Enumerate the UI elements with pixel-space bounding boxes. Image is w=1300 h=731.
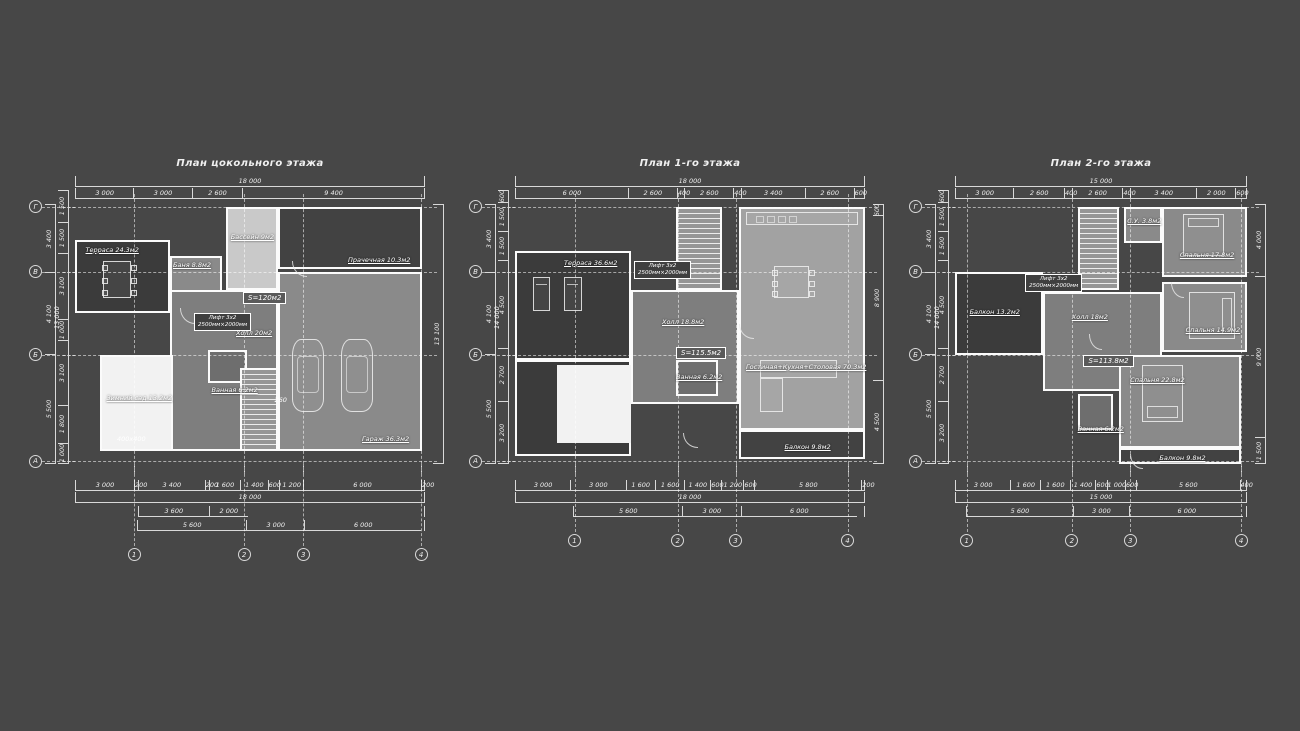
axis-leader-vertical bbox=[848, 464, 849, 532]
annotation: 400х400 bbox=[117, 435, 146, 443]
plan-drawing-area: Терраса 24.3м2Баня 8.8м2Бассейн 9м2Праче… bbox=[75, 204, 425, 464]
dim-gap bbox=[515, 506, 573, 517]
dimension-segment: 1 500 bbox=[1255, 437, 1266, 464]
dimension-segment: 1 500 bbox=[498, 202, 509, 231]
dimension-segment: 3 400 bbox=[485, 204, 496, 272]
dimension-segment: 5 500 bbox=[485, 354, 496, 464]
dimension-segment: 3 400 bbox=[138, 480, 205, 491]
dimension-segment: 600 bbox=[710, 480, 721, 491]
dim-gap bbox=[75, 520, 137, 531]
axis-bubble-4: 4 bbox=[415, 548, 428, 561]
dining-table-icon bbox=[103, 261, 131, 297]
axis-bubble-1: 1 bbox=[568, 534, 581, 547]
dimension-segment: 2 600 bbox=[1072, 188, 1123, 199]
axis-bubble-3: 3 bbox=[297, 548, 310, 561]
pillow-icon bbox=[1188, 218, 1219, 227]
dimension-segment: 1 500 bbox=[58, 222, 69, 254]
grid-line-horizontal bbox=[943, 272, 1259, 273]
lounger-icon bbox=[533, 277, 551, 311]
axis-bubble-2: 2 bbox=[238, 548, 251, 561]
hob-icon bbox=[789, 216, 798, 224]
dimension-segment: 3 100 bbox=[58, 340, 69, 405]
left-outer-dims: 3 4004 1005 500 bbox=[45, 204, 56, 464]
axis-bubble-2: 2 bbox=[671, 534, 684, 547]
axis-leader-vertical bbox=[134, 464, 135, 546]
grid-line-vertical bbox=[134, 194, 135, 474]
dimension-segment: 1 200 bbox=[721, 480, 743, 491]
room-pool bbox=[226, 207, 279, 290]
dimension-segment: 3 000 bbox=[246, 520, 304, 531]
bottom-dim-row-2: 3 6002 000 bbox=[75, 506, 425, 517]
room-label: Балкон 13.2м2 bbox=[970, 308, 1020, 316]
axis-bubble-Б: Б bbox=[29, 348, 42, 361]
dimension-segment: 4 500 bbox=[873, 380, 884, 464]
lounger-back bbox=[567, 284, 578, 285]
grid-line-horizontal bbox=[943, 461, 1259, 462]
room-label: Баня 8.8м2 bbox=[173, 261, 211, 269]
car-roof bbox=[297, 356, 319, 393]
dimension-segment: 1 200 bbox=[279, 480, 303, 491]
dining-table-icon bbox=[774, 266, 809, 297]
dimension-segment: 3 000 bbox=[75, 480, 134, 491]
dimension-segment: 3 000 bbox=[75, 188, 133, 199]
axis-bubble-В: В bbox=[469, 265, 482, 278]
axis-leader-vertical bbox=[303, 464, 304, 546]
chair-icon bbox=[809, 270, 815, 276]
dimension-segment: 1 500 bbox=[498, 231, 509, 260]
dimension-segment: 13 100 bbox=[433, 204, 444, 464]
dimension-segment: 600 bbox=[498, 190, 509, 202]
axis-bubble-Г: Г bbox=[909, 200, 922, 213]
grid-line-vertical bbox=[967, 194, 968, 474]
dimension-segment: 18 000 bbox=[75, 492, 425, 503]
top-segments-dim: 3 0002 6004002 6004003 4002 000600 bbox=[955, 188, 1247, 199]
door-arc-icon bbox=[1130, 454, 1143, 470]
axis-bubble-А: А bbox=[469, 455, 482, 468]
axis-bubble-3: 3 bbox=[729, 534, 742, 547]
right-dims: 4 0009 0001 500 bbox=[1255, 204, 1266, 464]
car-icon bbox=[341, 339, 373, 412]
right-dims: 13 100 bbox=[433, 204, 444, 464]
dimension-segment: 1 600 bbox=[626, 480, 655, 491]
hob-icon bbox=[756, 216, 765, 224]
dimension-segment: 6 000 bbox=[515, 188, 628, 199]
dimension-segment: 200 bbox=[861, 480, 865, 491]
area-stamp: S=113.8м2 bbox=[1083, 355, 1133, 367]
axis-leader-vertical bbox=[967, 464, 968, 532]
pillow-icon bbox=[1147, 406, 1178, 418]
grid-line-vertical bbox=[575, 194, 576, 474]
dimension-segment: 400 bbox=[1122, 188, 1130, 199]
dimension-segment: 4 500 bbox=[498, 260, 509, 348]
room-label: Ванная 6.2м2 bbox=[676, 373, 722, 381]
dimension-segment: 18 000 bbox=[75, 176, 425, 187]
dim-gap bbox=[75, 506, 138, 517]
dimension-segment: 5 800 bbox=[754, 480, 861, 491]
dimension-segment: 600 bbox=[938, 190, 949, 202]
dimension-segment: 3 000 bbox=[515, 480, 570, 491]
bottom-dim-row-2: 5 6003 0006 000 bbox=[515, 506, 865, 517]
top-segments-dim: 6 0002 6004002 6004003 4002 600600 bbox=[515, 188, 865, 199]
dimension-segment: 6 000 bbox=[1129, 506, 1243, 517]
grid-line-horizontal bbox=[503, 207, 877, 208]
axis-bubble-4: 4 bbox=[1235, 534, 1248, 547]
plan-drawing-area: Терраса 36.6м2Холл 18.8м2Ванная 6.2м2Гос… bbox=[515, 204, 865, 464]
axis-leader-vertical bbox=[421, 464, 422, 546]
room-label: Балкон 9.8м2 bbox=[1159, 454, 1205, 462]
room-label: С.У. 3.8м2 bbox=[1127, 217, 1161, 225]
chair-icon bbox=[102, 265, 108, 271]
axis-leader-vertical bbox=[1241, 464, 1242, 532]
dimension-segment: 15 000 bbox=[955, 492, 1247, 503]
dimension-segment: 5 500 bbox=[925, 354, 936, 464]
dimension-segment: 2 700 bbox=[938, 348, 949, 401]
dim-gap bbox=[857, 506, 865, 517]
grid-line-horizontal bbox=[63, 207, 437, 208]
axis-leader-vertical bbox=[678, 464, 679, 532]
dimension-segment: 3 200 bbox=[498, 401, 509, 464]
dimension-segment: 1 400 bbox=[684, 480, 710, 491]
dimension-segment: 3 400 bbox=[741, 188, 805, 199]
area-stamp: S=115.5м2 bbox=[676, 347, 726, 359]
dimension-segment: 600 bbox=[854, 188, 865, 199]
grid-line-horizontal bbox=[943, 207, 1259, 208]
grid-line-horizontal bbox=[503, 461, 877, 462]
stairs bbox=[240, 368, 279, 451]
chair-icon bbox=[102, 278, 108, 284]
room-label: Спальня 22.8м2 bbox=[1130, 376, 1185, 384]
dimension-segment: 2 000 bbox=[209, 506, 248, 517]
dimension-segment: 400 bbox=[1064, 188, 1072, 199]
dimension-segment: 3 400 bbox=[925, 204, 936, 272]
stairs bbox=[1078, 207, 1119, 290]
dimension-segment: 4 000 bbox=[1255, 204, 1266, 276]
axis-leader-vertical bbox=[1130, 464, 1131, 532]
grid-line-vertical bbox=[421, 194, 422, 474]
dimension-segment: 2 600 bbox=[684, 188, 733, 199]
axis-bubble-А: А bbox=[909, 455, 922, 468]
lounger-back bbox=[536, 284, 547, 285]
dimension-segment: 5 500 bbox=[45, 354, 56, 464]
dimension-segment: 8 900 bbox=[873, 215, 884, 380]
top-segments-dim: 3 0003 0002 6009 400 bbox=[75, 188, 425, 199]
hob-icon bbox=[767, 216, 776, 224]
dimension-segment: 400 bbox=[733, 188, 741, 199]
dimension-segment: 600 bbox=[1095, 480, 1106, 491]
dimension-segment: 2 000 bbox=[1196, 188, 1235, 199]
grid-line-vertical bbox=[1130, 194, 1131, 474]
dimension-segment: 6 000 bbox=[303, 480, 421, 491]
room-label: Гостиная+Кухня+Столовая 70.3м2 bbox=[746, 363, 866, 371]
left-outer-dims: 3 4004 1005 500 bbox=[485, 204, 496, 464]
bottom-dim-row-1: 15 000 bbox=[955, 492, 1247, 503]
bottom-dim-row-3: 5 6003 0006 000 bbox=[75, 520, 425, 531]
kitchen-counter-icon bbox=[746, 212, 858, 225]
grid-line-vertical bbox=[736, 194, 737, 474]
grid-line-horizontal bbox=[63, 461, 437, 462]
axis-leader-vertical bbox=[1072, 464, 1073, 532]
axis-bubble-В: В bbox=[909, 265, 922, 278]
room-label: Терраса 36.6м2 bbox=[564, 259, 617, 267]
grid-line-vertical bbox=[303, 194, 304, 474]
axis-leader-vertical bbox=[244, 464, 245, 546]
dimension-segment: 9 000 bbox=[1255, 276, 1266, 437]
grid-line-vertical bbox=[1241, 194, 1242, 474]
dimension-segment: 6 000 bbox=[741, 506, 858, 517]
dimension-segment: 2 600 bbox=[805, 188, 854, 199]
lounger-icon bbox=[564, 277, 582, 311]
plan-drawing-area: Балкон 13.2м2С.У. 3.8м2Спальня 17.8м2Спа… bbox=[955, 204, 1247, 464]
axis-bubble-1: 1 bbox=[960, 534, 973, 547]
dimension-segment: 1 600 bbox=[209, 480, 240, 491]
top-overall-dim: 18 000 bbox=[75, 176, 425, 187]
room-light-well bbox=[557, 365, 631, 443]
dimension-segment: 18 000 bbox=[515, 492, 865, 503]
dimension-segment: 15 000 bbox=[955, 176, 1247, 187]
dimension-segment: 600 bbox=[268, 480, 280, 491]
plan-title: План цокольного этажа bbox=[75, 158, 425, 169]
axis-bubble-Б: Б bbox=[909, 348, 922, 361]
plan-title: План 2-го этажа bbox=[955, 158, 1247, 169]
room-label: Бассейн 9м2 bbox=[231, 233, 274, 241]
dimension-segment: 1 600 bbox=[1040, 480, 1070, 491]
dimension-segment: 1 500 bbox=[58, 190, 69, 222]
left-overall-dim: 14 000 bbox=[493, 306, 501, 329]
axis-bubble-3: 3 bbox=[1124, 534, 1137, 547]
annotation: 260 bbox=[275, 396, 287, 404]
axis-leader-vertical bbox=[736, 464, 737, 532]
dimension-segment: 9 400 bbox=[242, 188, 425, 199]
dimension-segment: 1 400 bbox=[1070, 480, 1096, 491]
dimension-segment: 2 600 bbox=[192, 188, 243, 199]
room-label: Зимний сад 13.2м2 bbox=[107, 394, 173, 402]
bottom-dim-row-0: 3 0002003 4002001 6001 4006001 2006 0002… bbox=[75, 480, 425, 491]
chair-icon bbox=[772, 291, 778, 297]
room-label: Прачечная 10.3м2 bbox=[348, 256, 410, 264]
grid-line-vertical bbox=[678, 194, 679, 474]
axis-bubble-Г: Г bbox=[469, 200, 482, 213]
axis-bubble-А: А bbox=[29, 455, 42, 468]
floor-plan-basement: План цокольного этажа 18 0003 0003 0002 … bbox=[25, 150, 465, 590]
room-label: Терраса 24.3м2 bbox=[86, 246, 139, 254]
dimension-segment: 600 bbox=[743, 480, 754, 491]
bed-icon bbox=[1142, 365, 1183, 422]
top-overall-dim: 15 000 bbox=[955, 176, 1247, 187]
top-overall-dim: 18 000 bbox=[515, 176, 865, 187]
dimension-segment: 3 400 bbox=[1130, 188, 1196, 199]
room-label: Спальня 17.8м2 bbox=[1180, 251, 1235, 259]
bottom-dim-row-0: 3 0001 6001 6001 4006001 0006005 600400 bbox=[955, 480, 1247, 491]
bottom-dim-row-1: 18 000 bbox=[75, 492, 425, 503]
dimension-segment: 1 000 bbox=[1107, 480, 1125, 491]
dimension-segment: 2 600 bbox=[628, 188, 677, 199]
room-label: Ванная 6.2м2 bbox=[1078, 425, 1124, 433]
axis-bubble-4: 4 bbox=[841, 534, 854, 547]
chair-icon bbox=[131, 265, 137, 271]
dimension-segment: 1 800 bbox=[58, 405, 69, 443]
dimension-segment: 1 500 bbox=[938, 202, 949, 231]
plan-title: План 1-го этажа bbox=[515, 158, 865, 169]
axis-leader-vertical bbox=[575, 464, 576, 532]
sofa-seat-v bbox=[760, 378, 783, 412]
chair-icon bbox=[809, 291, 815, 297]
dim-gap bbox=[248, 506, 425, 517]
room-label: Гараж 36.3м2 bbox=[362, 435, 409, 443]
dimension-segment: 3 000 bbox=[955, 480, 1010, 491]
dimension-segment: 5 600 bbox=[1136, 480, 1239, 491]
floor-plan-first-floor: План 1-го этажа 18 0006 0002 6004002 600… bbox=[465, 150, 905, 590]
dimension-segment: 1 600 bbox=[1010, 480, 1040, 491]
dimension-segment: 3 200 bbox=[938, 401, 949, 464]
floor-plan-second-floor: План 2-го этажа 15 0003 0002 6004002 600… bbox=[905, 150, 1287, 590]
room-label: Ванная 6.2м2 bbox=[212, 386, 258, 394]
grid-line-vertical bbox=[848, 194, 849, 474]
room-label: Спальня 14.9м2 bbox=[1186, 326, 1241, 334]
axis-bubble-Б: Б bbox=[469, 348, 482, 361]
chair-icon bbox=[809, 281, 815, 287]
lift-label: Лифт 3х22500мм×2000мм bbox=[194, 313, 251, 331]
chair-icon bbox=[131, 290, 137, 296]
axis-bubble-В: В bbox=[29, 265, 42, 278]
left-overall-dim: 13 000 bbox=[53, 306, 61, 329]
car-roof bbox=[346, 356, 368, 393]
area-stamp: S=120м2 bbox=[243, 292, 286, 304]
hob-icon bbox=[778, 216, 787, 224]
dimension-segment: 2 700 bbox=[498, 348, 509, 401]
bottom-dim-row-2: 5 6003 0006 000 bbox=[955, 506, 1247, 517]
bottom-dim-row-0: 3 0003 0001 6001 6001 4006001 2006005 80… bbox=[515, 480, 865, 491]
dimension-segment: 4 500 bbox=[938, 260, 949, 348]
left-outer-dims: 3 4004 1005 500 bbox=[925, 204, 936, 464]
dimension-segment: 3 000 bbox=[133, 188, 191, 199]
dimension-segment: 3 000 bbox=[682, 506, 740, 517]
dim-gap bbox=[1243, 506, 1247, 517]
door-arc-icon bbox=[683, 433, 698, 449]
right-dims: 6008 9004 500 bbox=[873, 204, 884, 464]
room-label: Холл 18.8м2 bbox=[662, 318, 704, 326]
chair-icon bbox=[131, 278, 137, 284]
dimension-segment: 18 000 bbox=[515, 176, 865, 187]
dimension-segment: 6 000 bbox=[304, 520, 421, 531]
dimension-segment: 5 600 bbox=[966, 506, 1072, 517]
dimension-segment: 5 600 bbox=[573, 506, 682, 517]
dimension-segment: 1 000 bbox=[58, 443, 69, 464]
dimension-segment: 3 000 bbox=[570, 480, 625, 491]
dimension-segment: 1 500 bbox=[938, 231, 949, 260]
dim-gap bbox=[955, 506, 966, 517]
car-icon bbox=[292, 339, 324, 412]
bed-icon bbox=[1183, 214, 1224, 256]
dimension-segment: 2 600 bbox=[1013, 188, 1064, 199]
room-label: Балкон 9.8м2 bbox=[785, 443, 831, 451]
dimension-segment: 3 000 bbox=[1073, 506, 1130, 517]
lift-label: Лифт 3х22500мм×2000мм bbox=[634, 261, 691, 279]
grid-line-horizontal bbox=[63, 355, 437, 356]
room-label: Холл 18м2 bbox=[1072, 313, 1108, 321]
dimension-segment: 3 000 bbox=[955, 188, 1013, 199]
dimension-segment: 3 600 bbox=[138, 506, 209, 517]
bottom-dim-row-1: 18 000 bbox=[515, 492, 865, 503]
grid-line-vertical bbox=[1072, 194, 1073, 474]
chair-icon bbox=[772, 270, 778, 276]
dimension-segment: 600 bbox=[873, 204, 884, 215]
axis-bubble-Г: Г bbox=[29, 200, 42, 213]
chair-icon bbox=[772, 281, 778, 287]
dimension-segment: 5 600 bbox=[137, 520, 246, 531]
axis-bubble-2: 2 bbox=[1065, 534, 1078, 547]
lift-label: Лифт 3х22500мм×2000мм bbox=[1025, 274, 1082, 292]
axis-bubble-1: 1 bbox=[128, 548, 141, 561]
left-overall-dim: 14 000 bbox=[933, 306, 941, 329]
chair-icon bbox=[102, 290, 108, 296]
dimension-segment: 3 400 bbox=[45, 204, 56, 272]
dimension-segment: 1 600 bbox=[655, 480, 684, 491]
